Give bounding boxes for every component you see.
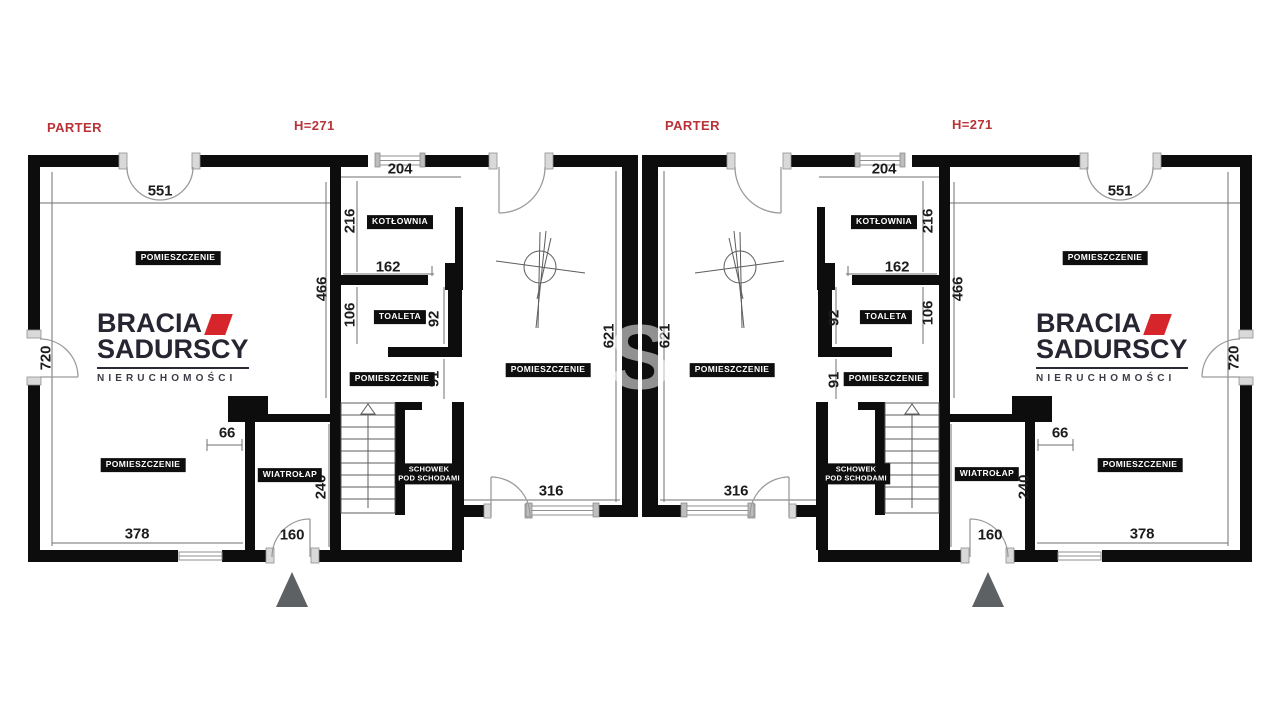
room-label-hall-right: POMIESZCZENIE xyxy=(844,372,929,386)
logo-text-sadurscy-left: SADURSCY xyxy=(97,337,249,363)
dim-162-right: 162 xyxy=(885,259,909,276)
dim-204-left: 204 xyxy=(388,161,412,178)
dim-720-right: 720 xyxy=(1226,346,1243,370)
room-label-wiatrolap-right: WIATROŁAP xyxy=(955,467,1019,481)
agency-logo-left: BRACIA SADURSCY NIERUCHOMOŚCI xyxy=(97,311,249,384)
room-label-schowek-left: SCHOWEK POD SCHODAMI xyxy=(395,463,463,484)
dim-204-right: 204 xyxy=(872,161,896,178)
room-label-pomieszczenie-2-right: POMIESZCZENIE xyxy=(1098,458,1183,472)
room-label-pomieszczenie-1-right: POMIESZCZENIE xyxy=(1063,251,1148,265)
dim-66-right: 66 xyxy=(1052,425,1068,442)
room-label-wiatrolap-left: WIATROŁAP xyxy=(258,468,322,482)
height-label-right: H=271 xyxy=(952,117,993,132)
dim-216-right: 216 xyxy=(920,209,937,233)
dim-378-right: 378 xyxy=(1130,526,1154,543)
dim-378-left: 378 xyxy=(125,526,149,543)
dim-92-left: 92 xyxy=(426,311,443,327)
dim-551-right: 551 xyxy=(1108,183,1132,200)
dim-162-left: 162 xyxy=(376,259,400,276)
dim-466-right: 466 xyxy=(950,277,967,301)
room-label-schowek-right: SCHOWEK POD SCHODAMI xyxy=(822,463,890,484)
logo-text-sadurscy-right: SADURSCY xyxy=(1036,337,1188,363)
dim-92-right: 92 xyxy=(826,310,843,326)
dim-316-right: 316 xyxy=(724,483,748,500)
logo-text-nieruchomosci-left: NIERUCHOMOŚCI xyxy=(97,367,249,384)
dim-66-left: 66 xyxy=(219,425,235,442)
room-label-pomieszczenie-1-left: POMIESZCZENIE xyxy=(136,251,221,265)
room-label-pomieszczenie-3-right: POMIESZCZENIE xyxy=(690,363,775,377)
agency-logo-right: BRACIA SADURSCY NIERUCHOMOŚCI xyxy=(1036,311,1188,384)
room-label-kotlownia-right: KOTŁOWNIA xyxy=(851,215,917,229)
room-label-pomieszczenie-2-left: POMIESZCZENIE xyxy=(101,458,186,472)
dim-160-right: 160 xyxy=(978,527,1002,544)
schowek-line2: POD SCHODAMI xyxy=(825,474,887,483)
floor-title-right: PARTER xyxy=(665,118,720,133)
dim-91-right: 91 xyxy=(826,372,843,388)
room-label-kotlownia-left: KOTŁOWNIA xyxy=(367,215,433,229)
logo-roof-icon-right xyxy=(1143,314,1172,335)
room-label-hall-left: POMIESZCZENIE xyxy=(350,372,435,386)
watermark-letter: S xyxy=(609,306,670,411)
dim-216-left: 216 xyxy=(342,209,359,233)
logo-text-nieruchomosci-right: NIERUCHOMOŚCI xyxy=(1036,367,1188,384)
dim-316-left: 316 xyxy=(539,483,563,500)
logo-roof-icon-left xyxy=(204,314,233,335)
room-label-toaleta-left: TOALETA xyxy=(374,310,426,324)
dim-106-right: 106 xyxy=(920,301,937,325)
floorplan-page: PARTER H=271 551 204 162 66 160 378 316 … xyxy=(0,0,1280,720)
schowek-line2: POD SCHODAMI xyxy=(398,474,460,483)
dim-551-left: 551 xyxy=(148,183,172,200)
height-label-left: H=271 xyxy=(294,118,335,133)
floor-title-left: PARTER xyxy=(47,120,102,135)
dim-160-left: 160 xyxy=(280,527,304,544)
dim-466-left: 466 xyxy=(314,277,331,301)
dim-106-left: 106 xyxy=(342,303,359,327)
dim-720-left: 720 xyxy=(38,346,55,370)
room-label-toaleta-right: TOALETA xyxy=(860,310,912,324)
room-label-pomieszczenie-3-left: POMIESZCZENIE xyxy=(506,363,591,377)
